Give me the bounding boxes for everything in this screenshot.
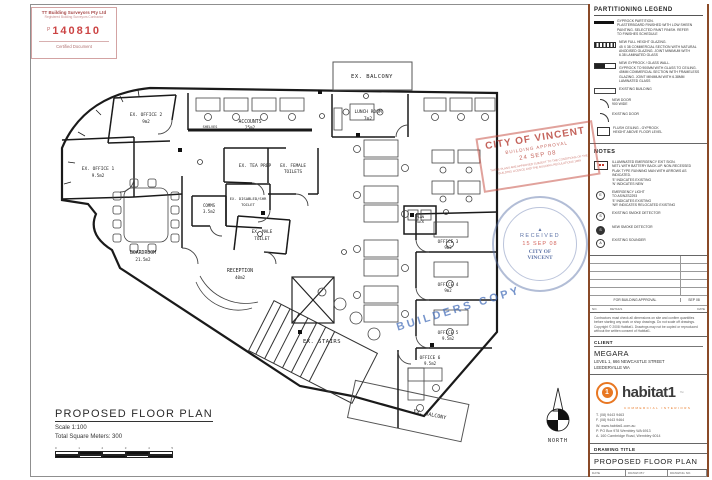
label-accounts-area: 25m2 xyxy=(245,125,256,130)
contact-address: A. 160 Cambridge Road, Wembley 6014 xyxy=(596,434,701,439)
label-ex-office-2: EX. OFFICE 2 xyxy=(130,112,163,118)
label-female-toilets-2: TOILETS xyxy=(284,169,303,175)
firm-section: 1 habitat1 ™ COMMERCIAL INTERIORS T. (08… xyxy=(590,375,707,444)
label-comms-area: 3.5m2 xyxy=(203,209,216,214)
legend-item-text: NEW GYPROCK / GLASS WALL. GYPROCK TO 900… xyxy=(619,61,699,83)
label-office-4-area: 9m2 xyxy=(444,288,452,293)
north-label: NORTH xyxy=(548,438,568,444)
revision-details: FOR BUILDING APPROVAL xyxy=(590,298,681,302)
label-ex-office-1-area: 9.5m2 xyxy=(92,173,105,178)
logo-wordmark: habitat1 xyxy=(622,384,676,401)
cert-subtitle: Registered Building Surveyors Contractor xyxy=(33,15,115,19)
revision-no-header: NO. xyxy=(592,307,610,311)
plan-title-block: PROPOSED FLOOR PLAN Scale 1:100 Total Sq… xyxy=(55,404,275,458)
revision-empty-row xyxy=(590,264,707,272)
new-smoke-detector-icon: S xyxy=(596,226,605,235)
received-stamp-mark: ▲ xyxy=(538,227,543,233)
note-item-text: ILLUMINATED EMERGENCY EXIT SIGN. NETL WI… xyxy=(612,160,691,187)
client-section: CLIENT MEGARA LEVEL 1, 666 NEWCASTLE STR… xyxy=(590,337,707,374)
cert-divider xyxy=(39,41,109,42)
label-plan-rack-2: RACK xyxy=(416,220,425,224)
cert-prefix: P xyxy=(47,27,50,33)
scale-bar-row-bottom xyxy=(55,455,173,459)
label-male-toilet: EX. MALE xyxy=(252,229,273,235)
revision-date-header: DATE xyxy=(681,307,705,311)
legend-item-text: NEW FULL HEIGHT GLAZING. 45 X 38 COMMERC… xyxy=(619,40,697,58)
flush-ceiling-icon xyxy=(597,127,610,136)
full-height-glazing-swatch-icon xyxy=(594,42,616,48)
note-item-text: EXISTING SMOKE DETECTOR xyxy=(612,211,661,215)
legend-title: PARTITIONING LEGEND xyxy=(594,7,703,16)
revision-issue-row: FOR BUILDING APPROVAL SEP 08 xyxy=(590,296,707,306)
note-item-text: EXISTING SOUNDER xyxy=(612,238,646,242)
revision-empty-row xyxy=(590,280,707,288)
notes-section: NOTES ILLUMINATED EMERGENCY EXIT SIGN. N… xyxy=(590,144,707,256)
plan-title: PROPOSED FLOOR PLAN xyxy=(55,408,213,422)
revision-details-header: DETAILS xyxy=(610,307,681,311)
existing-smoke-detector-icon: S xyxy=(596,212,605,221)
tick: 5 xyxy=(171,446,173,450)
partitioning-legend: PARTITIONING LEGEND GYPROCK PARTITION. P… xyxy=(590,4,707,144)
received-stamp-label: RECEIVED xyxy=(520,233,560,239)
revision-date: SEP 08 xyxy=(681,298,707,302)
drawing-info-table: DATE DRAWN BY DRAWING NO. JUL 08 WH 00 S… xyxy=(590,469,707,477)
note-item-text: EMERGENCY LIGHT TO AS/NZS2293 'E' INDICA… xyxy=(612,190,675,208)
scale-bar-ticks: 0 1 2 3 4 5 xyxy=(55,446,173,450)
logo-tagline: COMMERCIAL INTERIORS xyxy=(624,406,703,410)
label-shelves: SHELVES xyxy=(203,125,218,129)
emergency-light-icon: E xyxy=(596,191,605,200)
disclaimer-text: Contractors must check all dimensions on… xyxy=(590,313,707,338)
label-female-toilets: EX. FEMALE xyxy=(280,163,306,169)
tick: 1 xyxy=(78,446,80,450)
received-stamp-org-1: CITY OF xyxy=(527,249,552,255)
received-stamp-date: 15 SEP 08 xyxy=(522,241,557,247)
cert-footer: Certified Document xyxy=(33,44,115,49)
title-block: PARTITIONING LEGEND GYPROCK PARTITION. P… xyxy=(588,4,709,477)
tick: 4 xyxy=(148,446,150,450)
label-disabled-toilet: EX. DISABLED/SHR xyxy=(230,196,267,201)
label-balcony-top: EX. BALCONY xyxy=(351,74,393,80)
notes-title: NOTES xyxy=(594,147,703,157)
label-ex-office-2-area: 9m2 xyxy=(142,119,150,124)
legend-item-text: NEW DOOR 900 WIDE xyxy=(612,98,631,107)
scale-bar: 0 1 2 3 4 5 xyxy=(55,446,173,458)
habitat1-logo-icon: 1 xyxy=(596,382,618,404)
cert-number-row: P140810 xyxy=(33,21,115,39)
legend-item-text: EXISTING DOOR xyxy=(612,112,639,116)
received-stamp-org-2: VINCENT xyxy=(527,255,552,261)
date-label: DATE xyxy=(590,470,626,477)
cert-number: 140810 xyxy=(52,25,101,37)
existing-door-icon xyxy=(600,113,609,122)
drawing-no-label: DRAWING NO. xyxy=(668,470,707,477)
drawn-by-label: DRAWN BY xyxy=(626,470,668,477)
client-label: CLIENT xyxy=(594,340,703,347)
legend-item-text: FLUSH CEILING - GYPROCK HEIGHT ABOVE FLO… xyxy=(613,126,662,135)
revision-table: FOR BUILDING APPROVAL SEP 08 NO. DETAILS… xyxy=(590,256,707,313)
label-lunch-room: LUNCH ROOM xyxy=(354,109,381,115)
label-ex-office-1: EX. OFFICE 1 xyxy=(82,166,115,172)
label-office-5-area: 9.5m2 xyxy=(442,336,455,341)
label-office-3-area: 9m2 xyxy=(444,245,452,250)
gyprock-partition-swatch-icon xyxy=(594,21,614,24)
revision-empty-row xyxy=(590,288,707,296)
firm-contacts: T. (08) 9443 9463 F. (08) 9443 9464 W. w… xyxy=(594,413,703,440)
label-reception: RECEPTION xyxy=(227,268,253,274)
gyprock-glass-wall-swatch-icon xyxy=(594,63,616,69)
legend-item-text: GYPROCK PARTITION. PLASTERBOARD FINISHED… xyxy=(617,19,692,37)
tick: 2 xyxy=(102,446,104,450)
revision-table-footer: NO. DETAILS DATE xyxy=(590,306,707,312)
drawing-sheet: { "cert_stamp": { "company": "TT Buildin… xyxy=(0,0,712,480)
note-item-text: NEW SMOKE DETECTOR xyxy=(612,225,653,229)
existing-sounder-icon: A xyxy=(596,239,605,248)
client-name: MEGARA xyxy=(594,349,703,358)
logo-number: 1 xyxy=(602,387,613,398)
plan-scale-note: Scale 1:100 xyxy=(55,425,275,431)
legend-item-text: EXISTING BUILDING xyxy=(619,87,652,91)
tick: 0 xyxy=(55,446,57,450)
city-of-vincent-received-stamp: ▲ RECEIVED 15 SEP 08 CITY OF VINCENT xyxy=(492,196,588,292)
tick: 3 xyxy=(125,446,127,450)
habitat1-logo: 1 habitat1 ™ xyxy=(594,378,703,406)
certification-stamp: TT Building Surveyors Pty Ltd Registered… xyxy=(31,7,117,59)
existing-building-swatch-icon xyxy=(594,88,616,94)
received-stamp-org: CITY OF VINCENT xyxy=(527,249,552,262)
label-male-toilet-2: TOILET xyxy=(254,236,270,242)
new-door-icon xyxy=(600,99,609,108)
label-plan-rack: PLAN xyxy=(416,215,424,219)
revision-empty-row xyxy=(590,256,707,264)
client-address-2: LEEDERVILLE WA xyxy=(594,365,703,371)
label-office-6-area: 9.5m2 xyxy=(424,361,437,366)
label-disabled-toilet-2: TOILET xyxy=(241,202,255,207)
label-reception-area: 40m2 xyxy=(235,275,246,280)
label-comms: COMMS xyxy=(203,203,216,208)
revision-empty-row xyxy=(590,272,707,280)
north-arrow: NORTH xyxy=(547,388,569,444)
drawing-title-label: DRAWING TITLE xyxy=(594,447,703,452)
label-stairs: EX. STAIRS xyxy=(303,339,341,345)
label-lunch-area: 7m2 xyxy=(364,116,372,122)
drawing-title-section: DRAWING TITLE xyxy=(590,444,707,454)
drawing-title: PROPOSED FLOOR PLAN xyxy=(590,454,707,469)
label-tea-prep: EX. TEA PREP xyxy=(239,163,272,169)
logo-trademark: ™ xyxy=(680,390,684,395)
label-boardroom: BOARDROOM xyxy=(130,250,156,256)
label-boardroom-area: 21.5m2 xyxy=(135,257,151,262)
plan-total-area: Total Square Meters: 300 xyxy=(55,434,275,440)
